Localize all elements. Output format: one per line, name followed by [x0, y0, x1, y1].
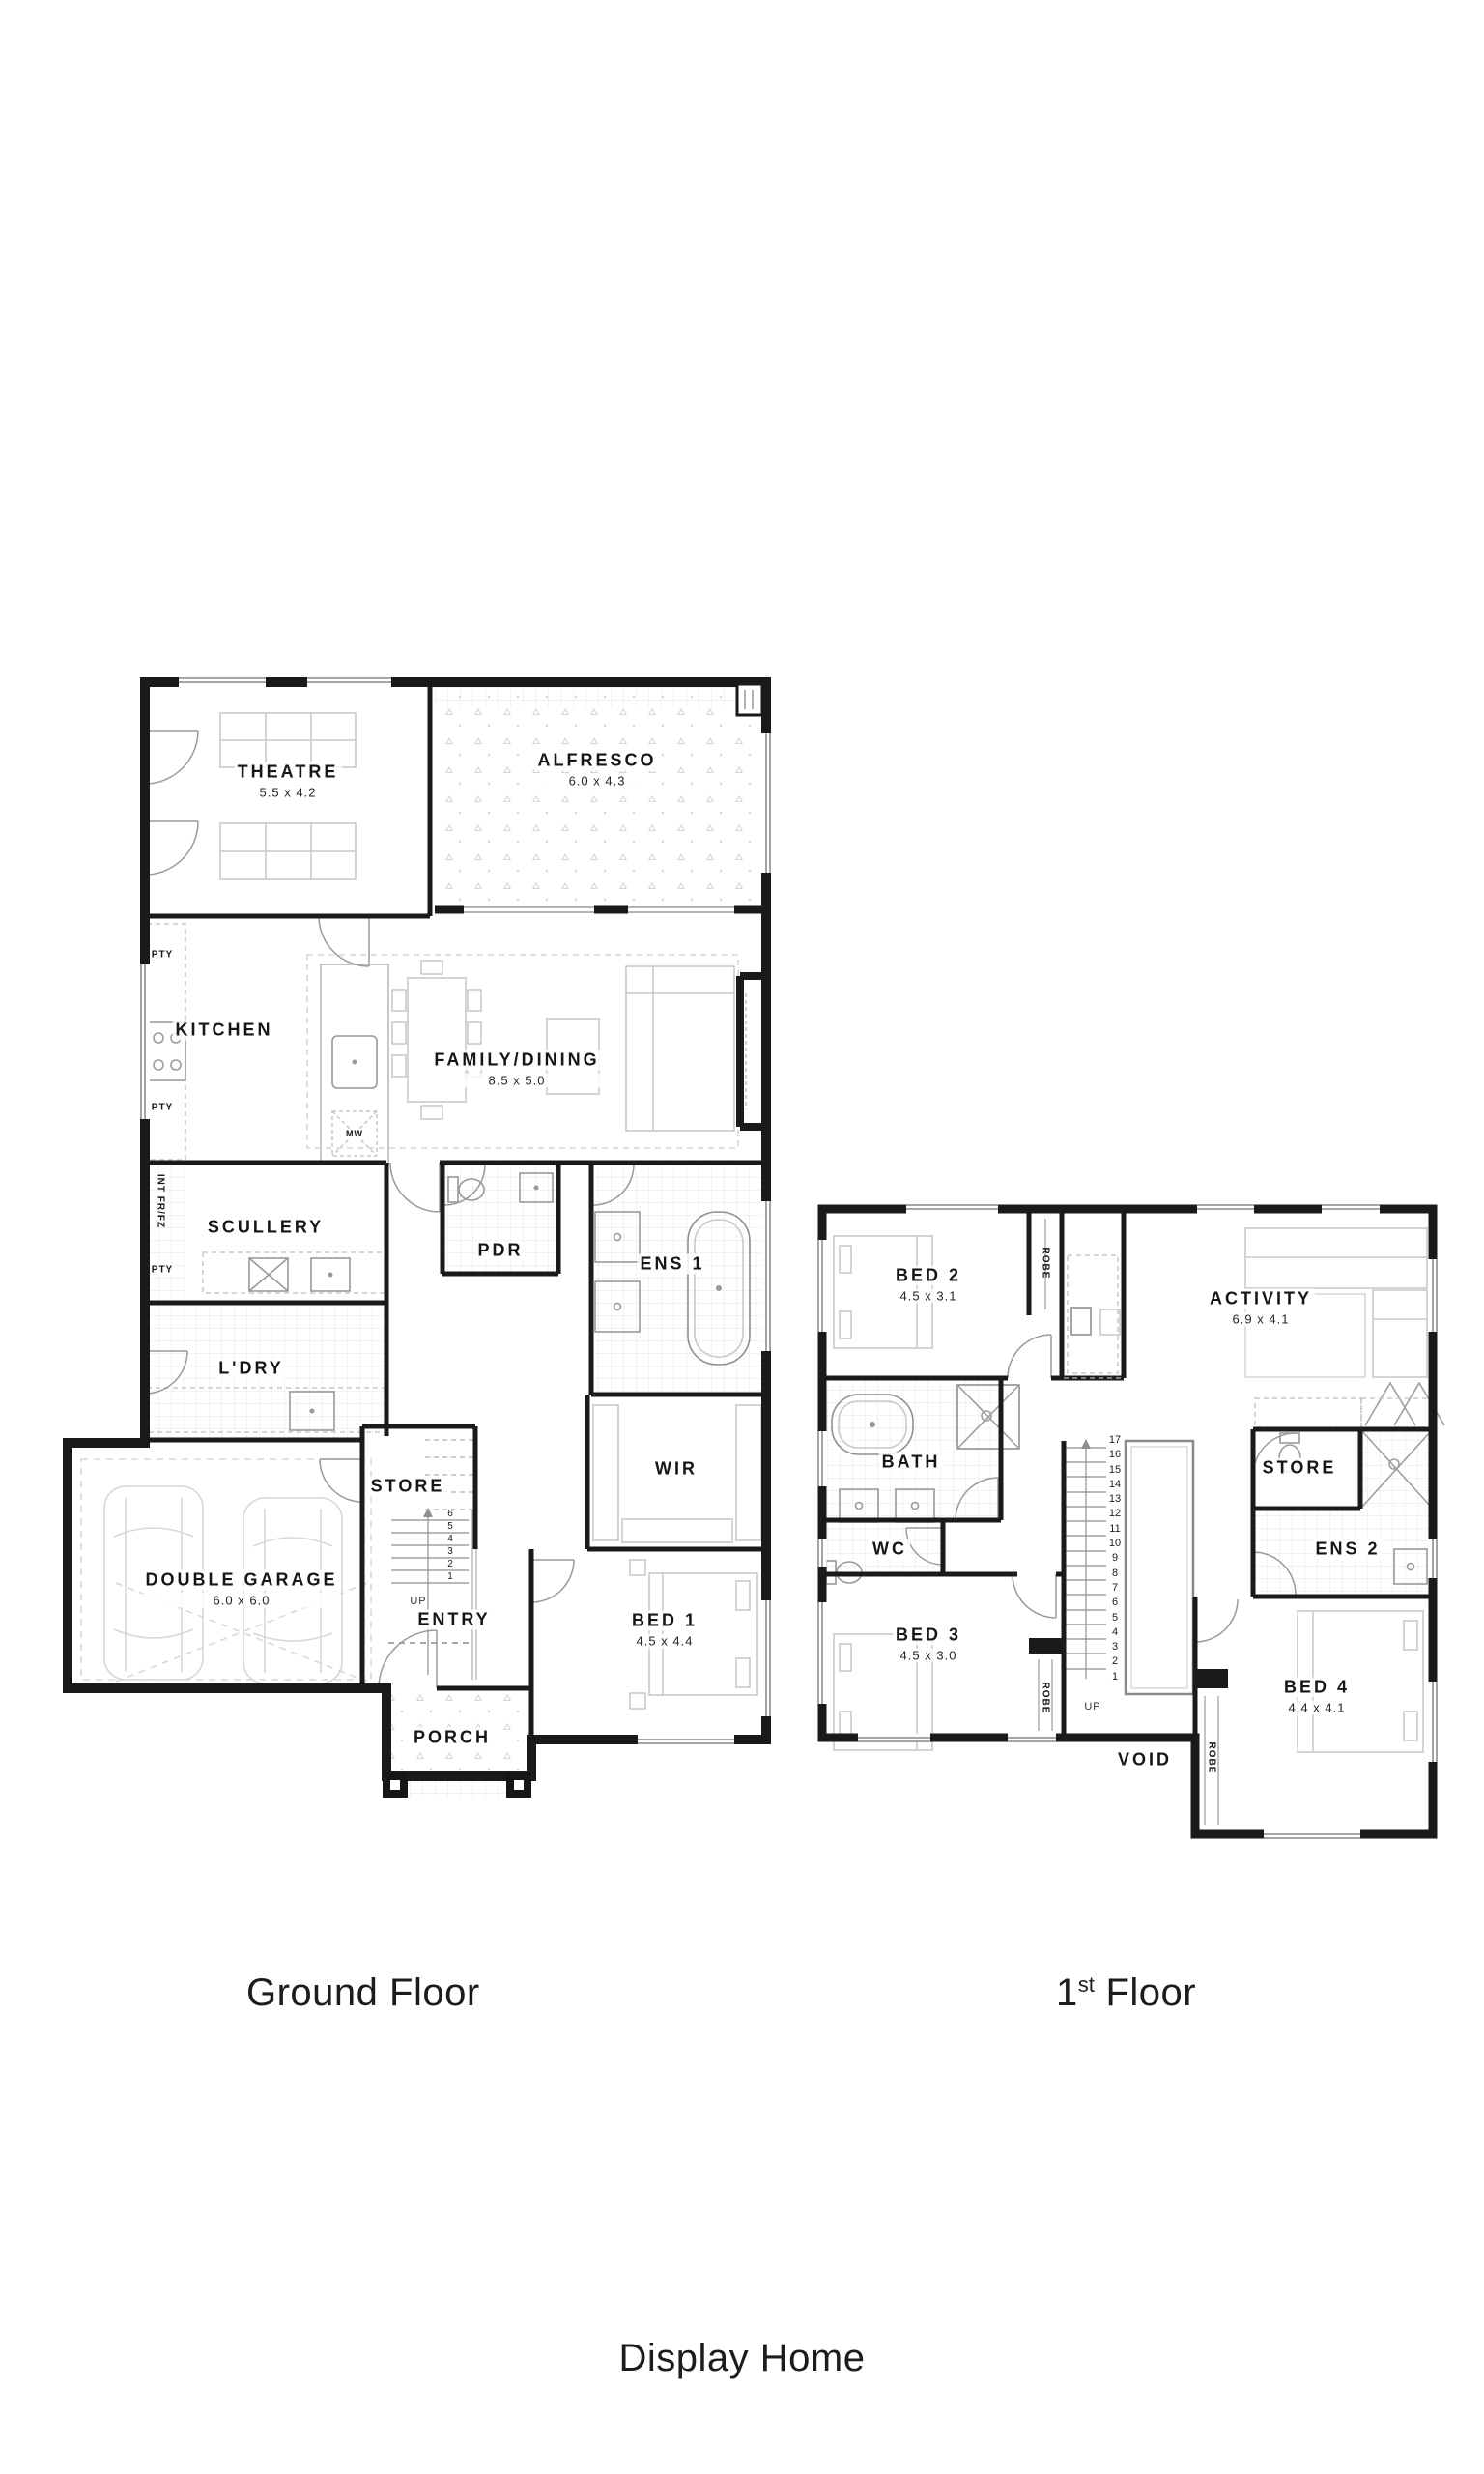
room-label-family-dining: FAMILY/DINING 8.5 x 5.0: [431, 1050, 602, 1088]
stair-step-number: 6: [447, 1508, 453, 1520]
room-dims: 4.5 x 3.1: [893, 1289, 964, 1304]
stair-step-number: 7: [1112, 1581, 1118, 1596]
integrated-fridge-label: INT FR/FZ: [156, 1173, 166, 1229]
stair-step-number: 15: [1109, 1463, 1121, 1478]
first-stair-numbers: 1716151413121110987654321: [1104, 1433, 1126, 1684]
ground-floor-caption-text: Ground Floor: [246, 1971, 480, 2014]
first-floor-ordinal: st: [1078, 1972, 1095, 1997]
stair-step-number: 4: [1112, 1625, 1118, 1640]
first-floor-stairs: [1066, 1439, 1193, 1694]
room-label-bed4: BED 4 4.4 x 4.1: [1281, 1678, 1353, 1715]
room-label-alfresco: ALFRESCO 6.0 x 4.3: [535, 751, 660, 789]
room-dims: 4.5 x 3.0: [893, 1649, 964, 1663]
stair-step-number: 8: [1112, 1567, 1118, 1581]
room-label-wir: WIR: [652, 1459, 700, 1480]
stair-step-number: 6: [1112, 1596, 1118, 1610]
robe-label: ROBE: [1041, 1247, 1051, 1280]
room-name: VOID: [1115, 1750, 1175, 1770]
stair-step-number: 3: [447, 1545, 453, 1558]
stair-step-number: 11: [1109, 1522, 1120, 1537]
room-label-double-garage: DOUBLE GARAGE 6.0 x 6.0: [142, 1570, 340, 1608]
room-name: DOUBLE GARAGE: [142, 1570, 340, 1591]
room-label-kitchen: KITCHEN: [173, 1021, 276, 1041]
room-dims: 6.0 x 4.3: [535, 774, 660, 789]
ground-stair-numbers: 654321: [441, 1508, 460, 1584]
microwave-label: MW: [345, 1129, 364, 1138]
room-name: SCULLERY: [205, 1218, 327, 1238]
room-label-bed1: BED 1 4.5 x 4.4: [629, 1611, 700, 1649]
room-label-ldry: L'DRY: [215, 1359, 287, 1379]
stair-step-number: 1: [1112, 1670, 1118, 1684]
first-floor-plan: BED 2 4.5 x 3.1 ACTIVITY 6.9 x 4.1 BATH …: [814, 1201, 1452, 1839]
room-name: WIR: [652, 1459, 700, 1480]
room-label-entry: ENTRY: [414, 1610, 493, 1630]
room-label-bed3: BED 3 4.5 x 3.0: [893, 1625, 964, 1663]
stair-step-number: 1: [447, 1570, 453, 1583]
stair-step-number: 17: [1109, 1433, 1121, 1448]
stair-step-number: 5: [1112, 1611, 1118, 1625]
floorplan-page: THEATRE 5.5 x 4.2 ALFRESCO 6.0 x 4.3 KIT…: [0, 0, 1484, 2474]
room-name: ENS 2: [1312, 1539, 1383, 1560]
room-name: PDR: [474, 1241, 526, 1261]
room-dims: 4.5 x 4.4: [629, 1634, 700, 1649]
room-name: BED 2: [893, 1266, 964, 1286]
stair-step-number: 10: [1109, 1537, 1121, 1551]
room-dims: 5.5 x 4.2: [235, 786, 342, 800]
display-home-caption: Display Home: [0, 2337, 1484, 2380]
room-name: FAMILY/DINING: [431, 1050, 602, 1071]
display-home-text: Display Home: [619, 2337, 866, 2379]
room-label-scullery: SCULLERY: [205, 1218, 327, 1238]
room-label-store-first: STORE: [1260, 1458, 1340, 1479]
room-name: BED 1: [629, 1611, 700, 1631]
room-name: STORE: [368, 1477, 448, 1497]
first-floor-number: 1: [1056, 1971, 1078, 2014]
stair-step-number: 4: [447, 1533, 453, 1545]
room-label-bath: BATH: [879, 1453, 944, 1473]
room-label-ens1: ENS 1: [637, 1254, 707, 1275]
ground-floor-caption: Ground Floor: [246, 1971, 480, 2015]
room-dims: 4.4 x 4.1: [1281, 1701, 1353, 1715]
first-floor-word: Floor: [1095, 1971, 1196, 2014]
room-name: STORE: [1260, 1458, 1340, 1479]
room-name: THEATRE: [235, 762, 342, 783]
stair-up-label: UP: [1084, 1701, 1100, 1712]
stair-step-number: 16: [1109, 1448, 1121, 1462]
room-label-void: VOID: [1115, 1750, 1175, 1770]
room-name: PORCH: [411, 1728, 494, 1748]
room-label-pdr: PDR: [474, 1241, 526, 1261]
stair-step-number: 12: [1109, 1507, 1121, 1521]
room-label-theatre: THEATRE 5.5 x 4.2: [235, 762, 342, 800]
room-label-bed2: BED 2 4.5 x 3.1: [893, 1266, 964, 1304]
pantry-label: PTY: [151, 1103, 174, 1113]
room-dims: 6.9 x 4.1: [1207, 1312, 1315, 1327]
room-label-activity: ACTIVITY 6.9 x 4.1: [1207, 1289, 1315, 1327]
room-name: ALFRESCO: [535, 751, 660, 771]
stair-step-number: 3: [1112, 1640, 1118, 1654]
room-name: BED 3: [893, 1625, 964, 1646]
ground-floor-plan: THEATRE 5.5 x 4.2 ALFRESCO 6.0 x 4.3 KIT…: [58, 675, 783, 1829]
room-name: WC: [870, 1539, 910, 1560]
room-label-porch: PORCH: [411, 1728, 494, 1748]
room-dims: 8.5 x 5.0: [431, 1074, 602, 1088]
pantry-label: PTY: [151, 1265, 174, 1276]
room-name: ENS 1: [637, 1254, 707, 1275]
first-floor-caption: 1st Floor: [1056, 1971, 1196, 2015]
stair-step-number: 2: [1112, 1654, 1118, 1669]
room-label-ens2: ENS 2: [1312, 1539, 1383, 1560]
stair-step-number: 5: [447, 1520, 453, 1533]
stair-step-number: 2: [447, 1558, 453, 1570]
room-label-wc: WC: [870, 1539, 910, 1560]
stair-up-label: UP: [410, 1596, 426, 1607]
stair-step-number: 9: [1112, 1551, 1118, 1566]
room-dims: 6.0 x 6.0: [142, 1594, 340, 1608]
ground-floor-drawing: [58, 675, 783, 1829]
robe-label: ROBE: [1041, 1682, 1051, 1715]
room-name: ENTRY: [414, 1610, 493, 1630]
room-label-store-ground: STORE: [368, 1477, 448, 1497]
room-name: L'DRY: [215, 1359, 287, 1379]
pantry-label: PTY: [151, 950, 174, 961]
room-name: BATH: [879, 1453, 944, 1473]
stair-step-number: 14: [1109, 1478, 1121, 1492]
robe-label: ROBE: [1207, 1741, 1217, 1775]
room-name: KITCHEN: [173, 1021, 276, 1041]
stair-step-number: 13: [1109, 1492, 1121, 1507]
room-name: ACTIVITY: [1207, 1289, 1315, 1309]
room-name: BED 4: [1281, 1678, 1353, 1698]
